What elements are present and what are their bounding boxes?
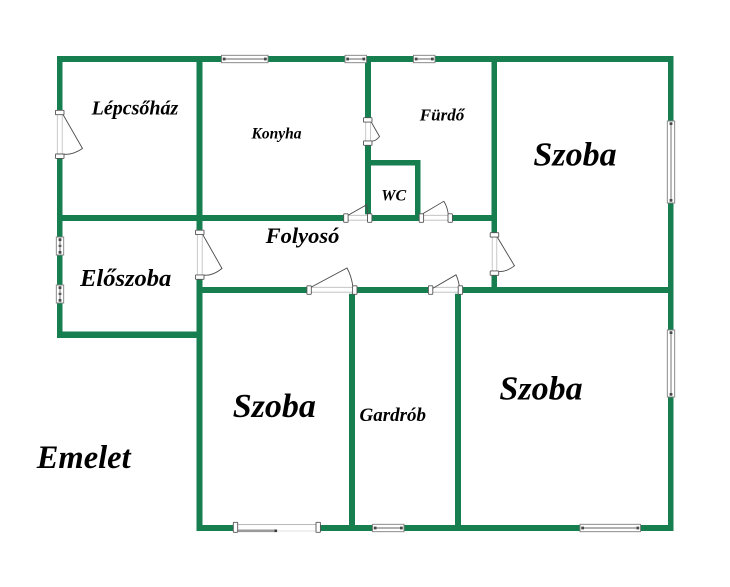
svg-text:Folyosó: Folyosó [265,223,340,248]
svg-text:Szoba: Szoba [499,371,582,408]
svg-text:Lépcsőház: Lépcsőház [91,98,179,120]
svg-text:Előszoba: Előszoba [79,265,171,292]
svg-text:Gardrób: Gardrób [360,405,427,426]
svg-text:Emelet: Emelet [36,440,132,476]
svg-text:Szoba: Szoba [533,137,616,174]
svg-text:Szoba: Szoba [233,388,316,425]
svg-text:WC: WC [381,188,406,205]
svg-text:Konyha: Konyha [251,126,302,143]
svg-text:Fürdő: Fürdő [419,106,466,125]
